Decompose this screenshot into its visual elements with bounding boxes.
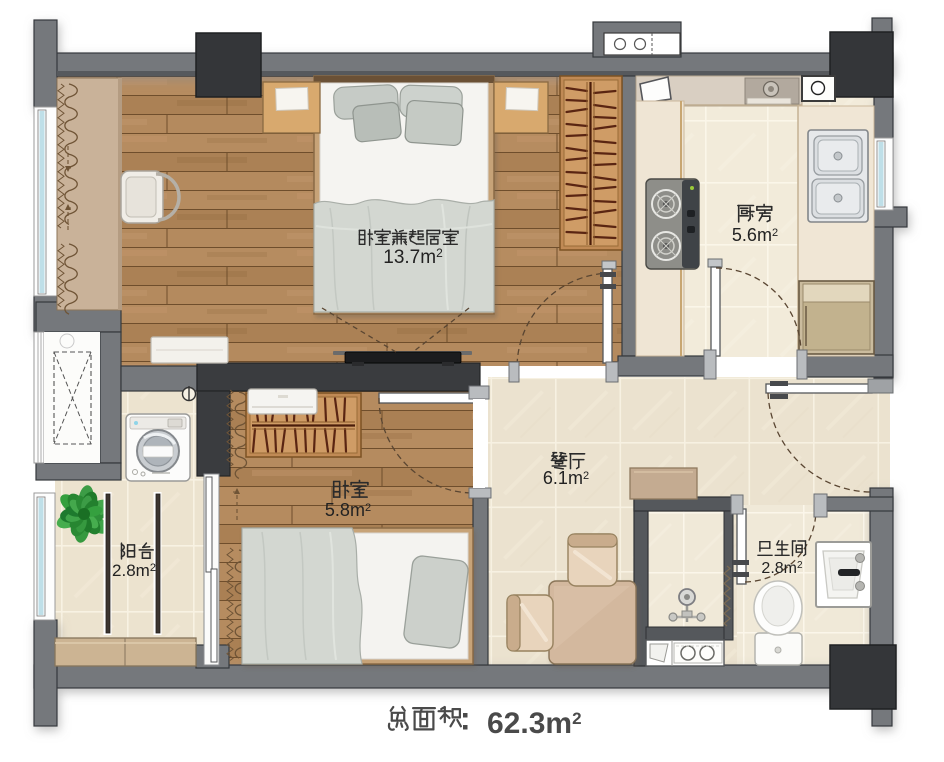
svg-text:5.8m2: 5.8m2 (325, 500, 371, 520)
svg-text:2.8m2: 2.8m2 (761, 560, 803, 577)
svg-text:2.8m2: 2.8m2 (112, 561, 156, 580)
svg-text:6.1m2: 6.1m2 (543, 468, 589, 488)
svg-text:5.6m2: 5.6m2 (732, 225, 778, 245)
svg-text:13.7m2: 13.7m2 (383, 246, 443, 268)
svg-text:62.3m2: 62.3m2 (487, 707, 582, 740)
